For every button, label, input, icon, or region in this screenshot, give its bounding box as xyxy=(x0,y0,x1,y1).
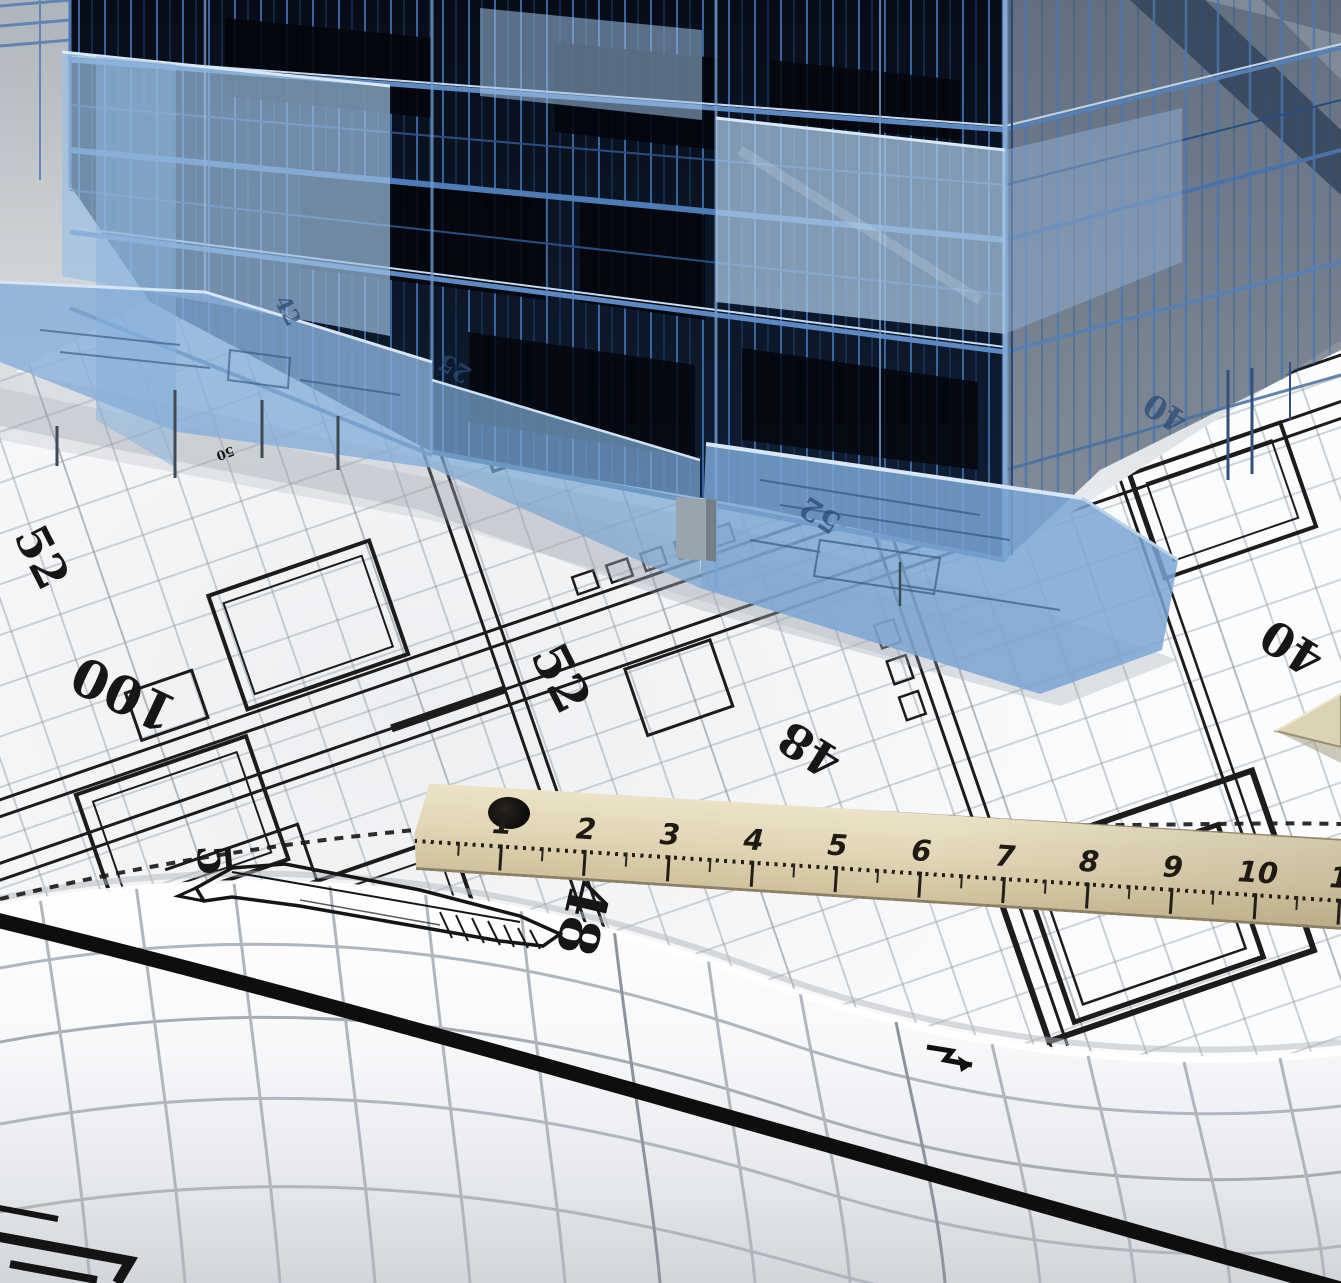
ruler-number: 9 xyxy=(1157,849,1189,885)
ruler-major-tick xyxy=(1169,888,1174,914)
ruler-major-tick xyxy=(750,861,755,887)
ruler-major-tick xyxy=(1253,893,1258,919)
ruler-major-tick xyxy=(917,872,922,898)
ruler-major-tick xyxy=(1337,899,1341,925)
dimension-label: 52 xyxy=(795,490,846,538)
ruler-number: 10 xyxy=(1237,854,1269,890)
ruler-major-tick xyxy=(834,866,839,892)
ruler-half-tick xyxy=(541,847,544,861)
architectural-render-photo: 52 100 52 48 40 48 5 40 52 42 25 50 xyxy=(0,0,1341,1283)
ruler-half-tick xyxy=(709,858,712,872)
ruler-half-tick xyxy=(625,853,628,867)
ruler-half-tick xyxy=(1212,891,1215,905)
dimension-label: 52 xyxy=(7,518,77,596)
ruler-half-tick xyxy=(792,863,795,877)
dimension-label: 40 xyxy=(1138,388,1193,439)
ruler-half-tick xyxy=(876,869,879,883)
ruler-major-tick xyxy=(498,844,503,870)
ruler-major-tick xyxy=(582,850,587,876)
ruler-number: 2 xyxy=(570,811,602,847)
ruler-number: 5 xyxy=(822,827,854,863)
ruler-number: 11 xyxy=(1328,860,1341,896)
ruler-half-tick xyxy=(960,874,963,888)
dimension-label: 42 xyxy=(271,292,305,329)
dimension-label: 5 xyxy=(190,842,239,878)
ruler-half-tick xyxy=(457,842,460,856)
ruler-half-tick xyxy=(1295,896,1298,910)
dimension-label: 48 xyxy=(548,874,619,961)
ruler-number: 7 xyxy=(989,838,1021,874)
dimension-label: 50 xyxy=(214,443,235,461)
ruler-major-tick xyxy=(1001,877,1006,903)
dimension-label: 25 xyxy=(434,349,475,387)
ruler-half-tick xyxy=(1128,885,1131,899)
ruler-number: 6 xyxy=(905,833,937,869)
ruler-major-tick xyxy=(1085,882,1090,908)
ruler-half-tick xyxy=(1044,880,1047,894)
ruler-number: 8 xyxy=(1073,844,1105,880)
ruler-number: 4 xyxy=(738,822,770,858)
dimension-labels: 52 100 52 48 40 48 5 40 52 42 25 50 xyxy=(0,0,1341,1283)
ruler-number: 1 xyxy=(486,806,518,842)
ruler-number: 3 xyxy=(654,816,686,852)
dimension-label: 100 xyxy=(64,646,184,739)
dimension-label: 52 xyxy=(523,636,599,721)
dimension-label: 40 xyxy=(1253,612,1332,685)
dimension-label: 48 xyxy=(771,714,850,787)
ruler-major-tick xyxy=(666,855,671,881)
